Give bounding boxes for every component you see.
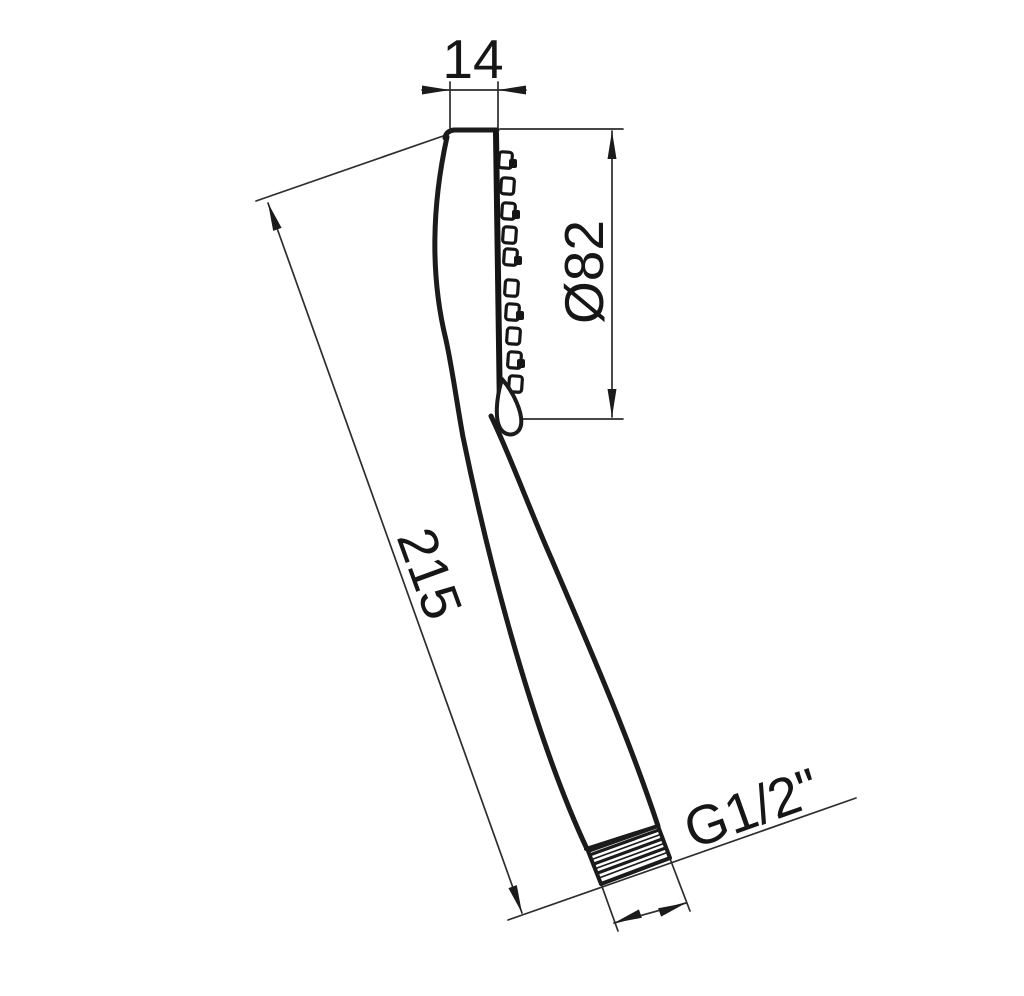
handle-right-edge: [491, 416, 658, 826]
nozzle-icon: [509, 159, 517, 168]
dimension-label-head-diameter: Ø82: [553, 220, 615, 324]
arrowhead-thread-right: [658, 903, 686, 917]
nozzle-icon: [506, 328, 520, 345]
spray-face-plate: [496, 133, 500, 415]
dimension-label-thread: G1/2": [676, 756, 828, 861]
nozzle-icon: [516, 311, 524, 320]
nozzle-icon: [504, 280, 518, 297]
arrowhead-length-bottom: [508, 885, 522, 913]
outlet-thread: [588, 826, 670, 884]
dimension-head-thickness: 14: [422, 28, 526, 128]
nozzle-icon: [512, 210, 520, 219]
arrowhead-diameter-top: [608, 131, 617, 159]
arrowhead-diameter-bottom: [608, 389, 617, 417]
technical-drawing-canvas: 215 G1/2" Ø82 14: [0, 0, 1024, 996]
nozzle-icon: [517, 359, 525, 368]
extension-line-length-top: [256, 135, 446, 201]
dimension-label-overall-length: 215: [385, 520, 475, 627]
extension-line-thread-right: [669, 856, 690, 911]
nozzle-icon: [514, 256, 522, 265]
head-top-rim: [445, 130, 497, 138]
technical-drawing-page: 215 G1/2" Ø82 14: [0, 0, 1024, 996]
arrowhead-length-top: [268, 203, 282, 231]
dimension-label-head-thickness: 14: [442, 28, 503, 90]
nozzle-icon: [500, 178, 514, 195]
nozzle-icon: [502, 227, 516, 244]
arrowhead-thread-left: [614, 909, 642, 923]
spray-nozzles: [498, 152, 525, 393]
